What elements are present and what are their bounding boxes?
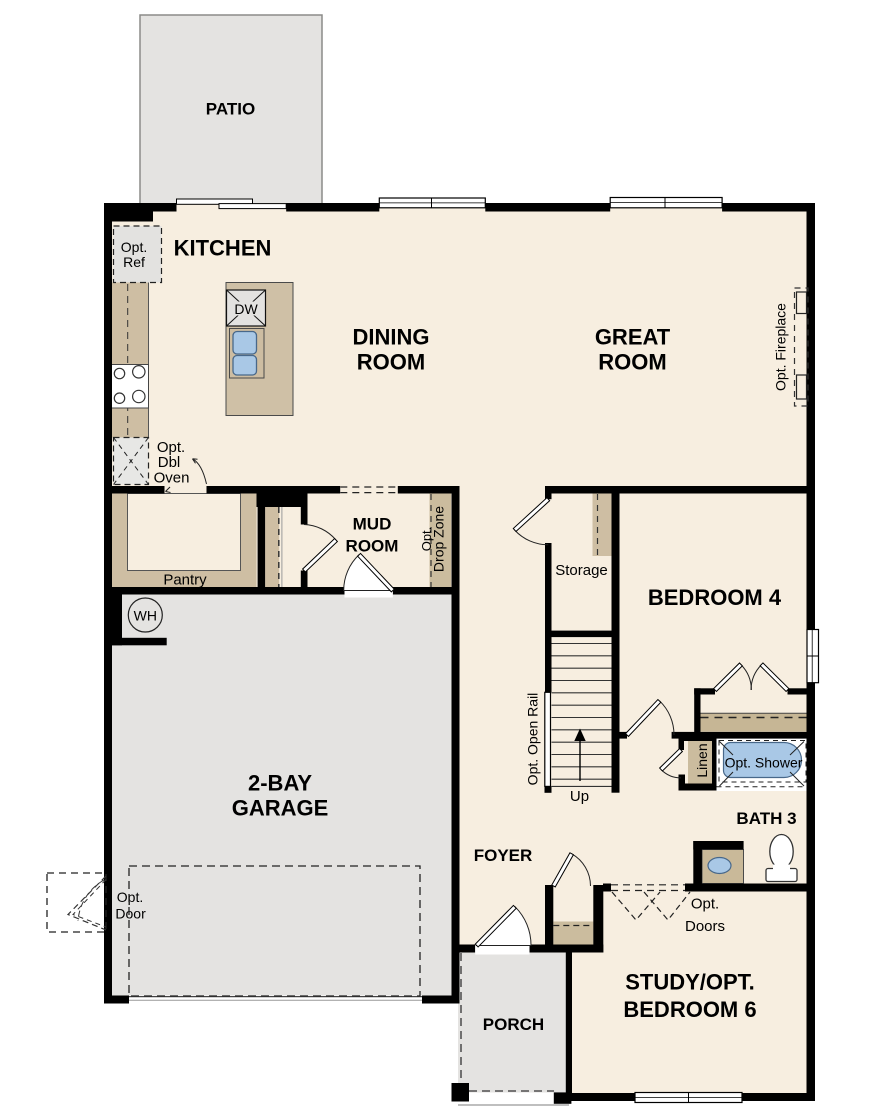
svg-text:Opt.: Opt.	[691, 896, 719, 913]
svg-text:Opt.: Opt.	[121, 239, 147, 255]
svg-text:Door: Door	[115, 906, 146, 922]
svg-text:Linen: Linen	[694, 743, 710, 777]
svg-text:STUDY/OPT.: STUDY/OPT.	[625, 970, 755, 995]
svg-text:Storage: Storage	[555, 562, 608, 579]
svg-text:ROOM: ROOM	[346, 537, 399, 556]
svg-text:Dbl: Dbl	[158, 454, 181, 471]
svg-text:ROOM: ROOM	[598, 350, 666, 375]
svg-text:Ref: Ref	[123, 254, 145, 270]
svg-text:BEDROOM 4: BEDROOM 4	[648, 585, 782, 610]
svg-text:ROOM: ROOM	[357, 350, 425, 375]
svg-text:KITCHEN: KITCHEN	[174, 236, 272, 261]
svg-text:Opt. Open Rail: Opt. Open Rail	[525, 693, 541, 786]
svg-text:Opt. Fireplace: Opt. Fireplace	[773, 303, 789, 391]
svg-text:MUD: MUD	[353, 515, 392, 534]
svg-text:2-BAY: 2-BAY	[248, 771, 312, 796]
svg-text:Pantry: Pantry	[163, 572, 207, 589]
svg-text:GARAGE: GARAGE	[232, 796, 329, 821]
svg-text:GREAT: GREAT	[595, 325, 671, 350]
svg-text:BEDROOM 6: BEDROOM 6	[623, 997, 756, 1022]
svg-text:BATH 3: BATH 3	[736, 809, 796, 828]
svg-text:Opt.: Opt.	[117, 889, 143, 905]
svg-text:PATIO: PATIO	[206, 100, 255, 119]
svg-text:PORCH: PORCH	[483, 1015, 544, 1034]
svg-text:Opt. Shower: Opt. Shower	[725, 755, 803, 771]
svg-text:DINING: DINING	[353, 325, 430, 350]
svg-text:Oven: Oven	[154, 470, 190, 487]
svg-text:Drop Zone: Drop Zone	[431, 506, 447, 572]
svg-text:DW: DW	[234, 301, 258, 317]
svg-text:Doors: Doors	[685, 918, 725, 935]
svg-text:FOYER: FOYER	[474, 846, 533, 865]
svg-text:WH: WH	[134, 608, 157, 624]
svg-text:Up: Up	[570, 788, 589, 805]
